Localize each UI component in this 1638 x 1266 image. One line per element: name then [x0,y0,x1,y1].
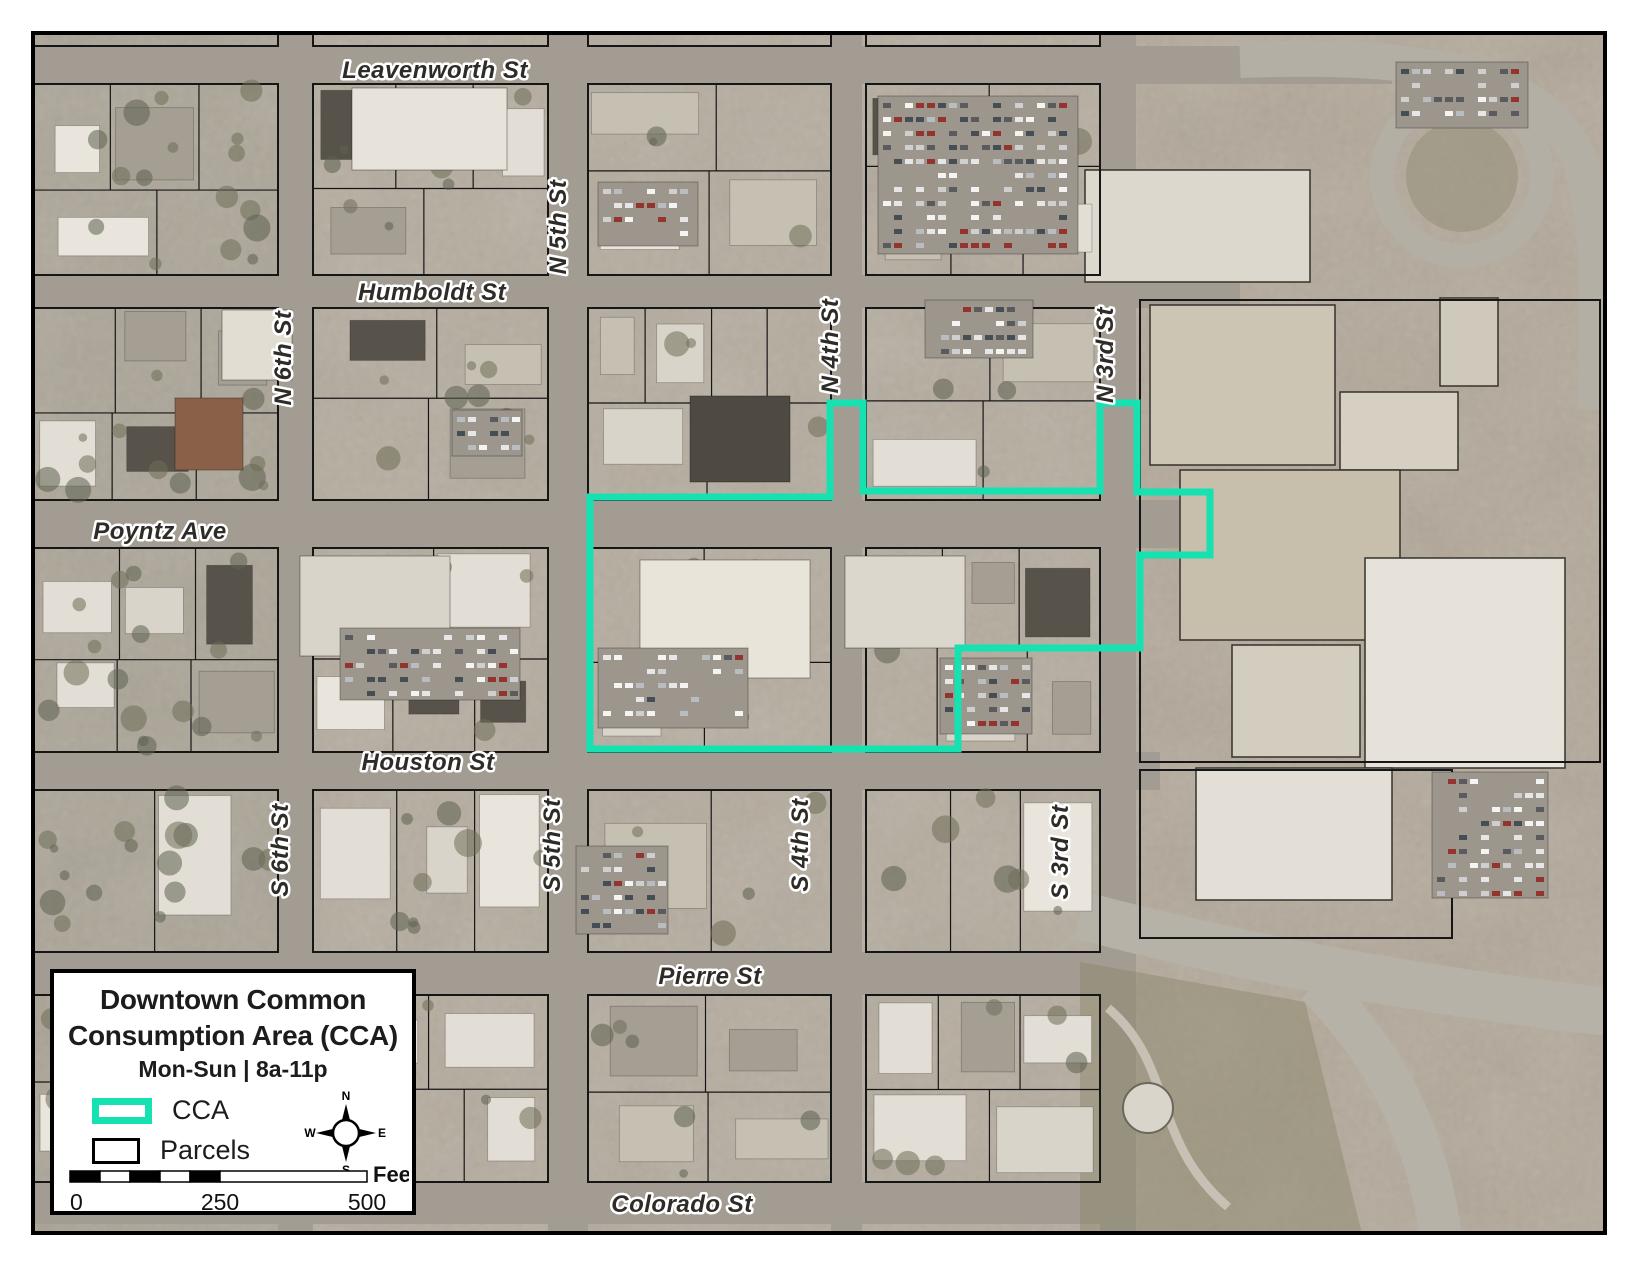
street-label-poyntz-ave: Poyntz Ave [93,518,226,545]
legend-item-cca: CCA [92,1095,229,1126]
street-label-s-6th-st: S 6th St [267,803,294,897]
cca-swatch-label: CCA [172,1095,229,1126]
legend-title: Downtown Common Consumption Area (CCA) [54,982,412,1054]
street-label-n-5th-st: N 5th St [545,179,572,274]
compass-n-label: N [342,1089,351,1103]
scale-bar-segments [70,1171,367,1182]
legend-title-line2: Consumption Area (CCA) [54,1018,412,1054]
street-label-s-3rd-st: S 3rd St [1047,804,1074,899]
cca-swatch [92,1098,152,1124]
scale-tick-500: 500 [348,1189,386,1215]
street-label-pierre-st: Pierre St [658,963,762,990]
legend-panel: Downtown Common Consumption Area (CCA) M… [50,969,416,1215]
compass-rose-icon: N S W E [304,1087,388,1175]
parcels-swatch [92,1138,140,1164]
parcels-swatch-label: Parcels [160,1135,250,1166]
street-label-houston-st: Houston St [362,749,495,776]
street-label-humboldt-st: Humboldt St [358,279,507,306]
street-label-n-4th-st: N 4th St [817,298,844,393]
scale-tick-250: 250 [201,1189,239,1215]
compass-w-label: W [304,1126,316,1140]
street-label-s-5th-st: S 5th St [539,798,566,892]
compass-center [333,1120,359,1146]
street-label-s-4th-st: S 4th St [787,798,814,892]
scale-bar: Feet 0 250 500 [69,1165,409,1217]
street-label-n-3rd-st: N 3rd St [1092,306,1119,403]
legend-hours: Mon-Sun | 8a-11p [54,1056,412,1083]
scale-tick-0: 0 [70,1189,83,1215]
legend-item-parcels: Parcels [92,1135,250,1166]
street-label-leavenworth-st: Leavenworth St [342,57,528,84]
street-label-colorado-st: Colorado St [611,1191,753,1218]
compass-e-label: E [378,1126,386,1140]
legend-title-line1: Downtown Common [54,982,412,1018]
street-label-n-6th-st: N 6th St [270,310,297,405]
scale-unit-label: Feet [373,1165,409,1187]
